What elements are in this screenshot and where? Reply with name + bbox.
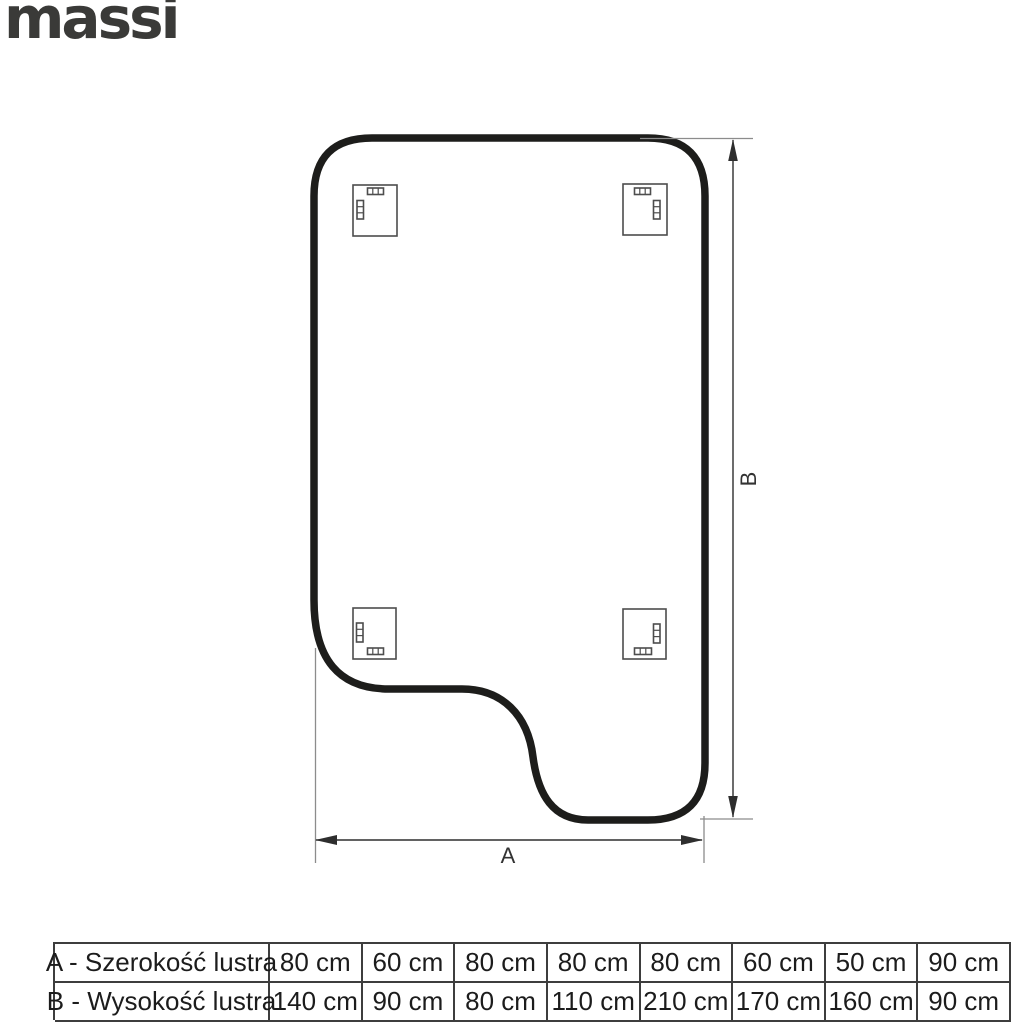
row-b-value: 170 cm: [733, 983, 826, 1022]
row-a-value: 80 cm: [641, 944, 734, 983]
row-a-value: 50 cm: [826, 944, 919, 983]
arrow-left-icon: [315, 835, 337, 845]
row-a-value: 60 cm: [363, 944, 456, 983]
arrow-right-icon: [681, 835, 703, 845]
row-a-value: 90 cm: [918, 944, 1011, 983]
row-b-value: 140 cm: [270, 983, 363, 1022]
arrow-up-icon: [728, 139, 738, 161]
row-b-value: 80 cm: [455, 983, 548, 1022]
row-a-value: 80 cm: [455, 944, 548, 983]
row-a-value: 80 cm: [270, 944, 363, 983]
mirror-outline: [314, 138, 705, 820]
mounting-bracket-top-right: [623, 184, 667, 235]
dim-label-a: A: [501, 843, 516, 868]
row-b-value: 90 cm: [363, 983, 456, 1022]
height-dimension: B: [728, 139, 761, 818]
dim-label-b: B: [736, 472, 761, 487]
row-b-value: 210 cm: [641, 983, 734, 1022]
mounting-bracket-bottom-left: [353, 608, 396, 659]
mounting-bracket-top-left: [353, 185, 397, 236]
row-b-label: B - Wysokość lustra: [55, 983, 270, 1022]
row-a-value: 80 cm: [548, 944, 641, 983]
width-dimension: A: [315, 835, 703, 868]
row-a-value: 60 cm: [733, 944, 826, 983]
row-a-label: A - Szerokość lustra: [55, 944, 270, 983]
row-b-value: 90 cm: [918, 983, 1011, 1022]
row-b-value: 160 cm: [826, 983, 919, 1022]
arrow-down-icon: [728, 796, 738, 818]
mirror-dimension-diagram: A B: [0, 0, 1020, 1020]
dimensions-table: A - Szerokość lustra 80 cm 60 cm 80 cm 8…: [53, 942, 1011, 1020]
row-b-value: 110 cm: [548, 983, 641, 1022]
mounting-bracket-bottom-right: [623, 609, 666, 659]
